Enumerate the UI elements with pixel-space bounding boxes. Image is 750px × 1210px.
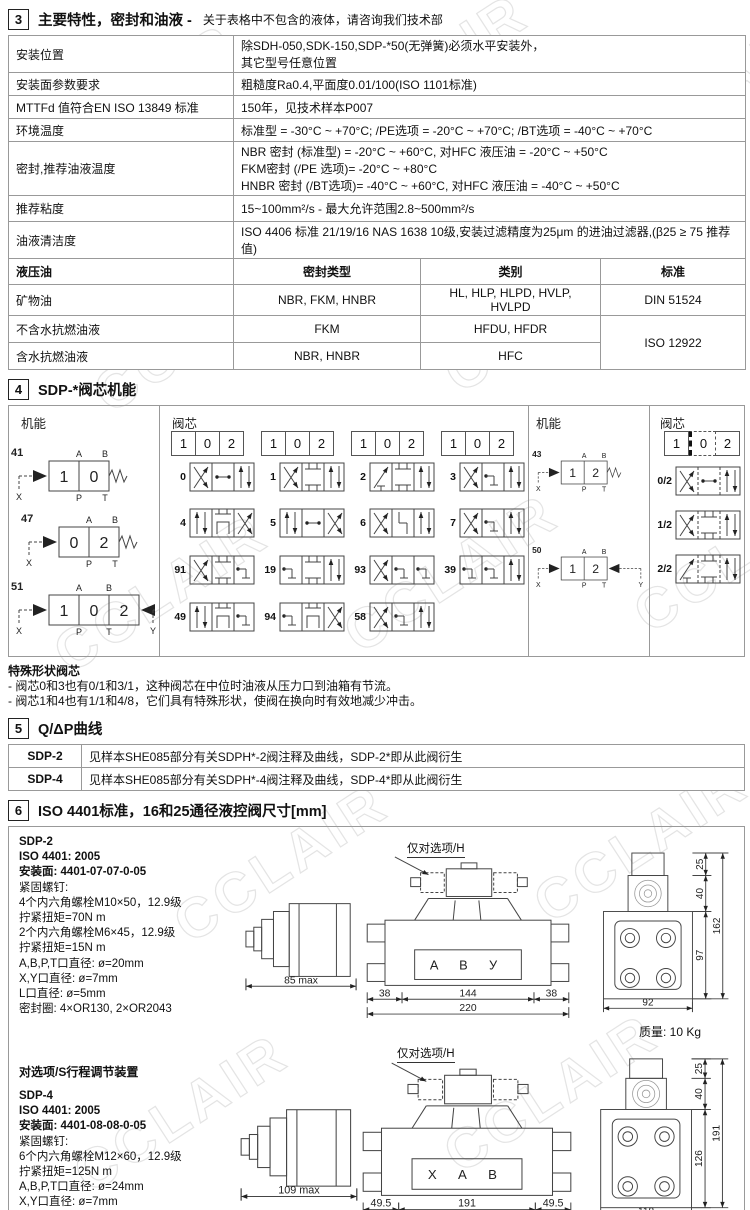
svg-text:51: 51 — [11, 581, 23, 593]
row-label: 推荐粘度 — [9, 196, 234, 222]
table-row: 安装面参数要求 粗糙度Ra0.4,平面度0.01/100(ISO 1101标准) — [9, 73, 746, 96]
special-spool-notes: 特殊形状阀芯 - 阀芯0和3也有0/1和3/1，这种阀芯在中位时油液从压力口到油… — [8, 664, 750, 709]
divider — [528, 406, 529, 656]
svg-text:49.5: 49.5 — [543, 1198, 564, 1210]
column-header: 类别 — [421, 259, 601, 285]
function-diagram-43: 4312ABPTX — [530, 448, 646, 502]
section3-number: 3 — [8, 9, 29, 30]
spool-symbol-4: 4 — [167, 508, 255, 538]
svg-text:144: 144 — [459, 988, 477, 999]
spec-line: X,Y口直径: ø=7mm — [19, 1195, 259, 1210]
svg-text:38: 38 — [546, 988, 558, 999]
table-row: 环境温度 标准型 = -30°C ~ +70°C; /PE选项 = -20°C … — [9, 119, 746, 142]
svg-text:P: P — [76, 493, 82, 503]
section6-number: 6 — [8, 800, 29, 821]
spool-id: 58 — [347, 611, 366, 623]
section3-subtitle: 关于表格中不包含的液体，请咨询我们技术部 — [203, 11, 443, 28]
spool-position-cell: 1 — [351, 431, 376, 456]
qdp-table: SDP-2 见样本SHE085部分有关SDPH*-2阀注释及曲线，SDP-2*即… — [8, 744, 745, 791]
spec-line: 6个内六角螺栓M12×60，12.9级 — [19, 1150, 259, 1165]
row-label: 环境温度 — [9, 119, 234, 142]
iso-standard: ISO 4401: 2005 — [19, 1104, 259, 1119]
svg-text:Y: Y — [150, 626, 156, 636]
spec-line: 拧紧扭矩=15N m — [19, 941, 259, 956]
fluid-seal: FKM — [234, 316, 421, 343]
svg-text:25: 25 — [695, 858, 706, 870]
spool-function-panel: 机能 阀芯 机能 阀芯 102 102 102 102 102 4110ABPT… — [8, 405, 745, 657]
model-name: SDP-2 — [19, 835, 259, 850]
svg-text:25: 25 — [694, 1063, 705, 1075]
svg-text:A: A — [582, 453, 587, 460]
svg-text:1: 1 — [60, 469, 69, 486]
spool-symbol-94: 94 — [257, 602, 345, 632]
section5-header: 5 Q/ΔP曲线 — [8, 718, 750, 739]
column-header-function: 机能 — [536, 413, 561, 432]
svg-text:P: P — [582, 583, 587, 590]
spool-id: 93 — [347, 564, 366, 576]
svg-text:T: T — [102, 493, 108, 503]
svg-text:109 max: 109 max — [278, 1184, 320, 1196]
spool-symbol-0: 0 — [167, 462, 255, 492]
spec-line: 紧固螺钉: — [19, 1135, 259, 1150]
spool-position-cell: 0 — [286, 431, 310, 456]
function-diagram-51: 51102ABPTXY — [9, 578, 159, 647]
row-value: 150年，见技术样本P007 — [234, 96, 746, 119]
table-row: 油液清洁度 ISO 4406 标准 21/19/16 NAS 1638 10级,… — [9, 222, 746, 259]
svg-text:B: B — [112, 515, 118, 525]
mounting-face: 安装面: 4401-08-08-0-05 — [19, 1119, 259, 1134]
section4-header: 4 SDP-*阀芯机能 — [8, 379, 750, 400]
spool-symbol-49: 49 — [167, 602, 255, 632]
fluid-standard: DIN 51524 — [601, 285, 746, 316]
svg-text:2: 2 — [100, 535, 109, 552]
svg-text:X: X — [26, 558, 32, 568]
svg-text:B: B — [602, 453, 607, 460]
svg-text:1: 1 — [569, 562, 576, 576]
spool-position-cell: 2 — [310, 431, 334, 456]
fluid-row: 不含水抗燃油液 FKM HFDU, HFDR ISO 12922 — [9, 316, 746, 343]
svg-text:38: 38 — [379, 988, 391, 999]
spool-id: 39 — [437, 564, 456, 576]
spool-symbol-2: 2 — [347, 462, 435, 492]
spool-symbol-6: 6 — [347, 508, 435, 538]
table-row: MTTFd 值符合EN ISO 13849 标准 150年，见技术样本P007 — [9, 96, 746, 119]
spool-position-box: 102 — [441, 431, 514, 456]
model-label: SDP-2 — [9, 745, 82, 768]
svg-text:92: 92 — [642, 997, 654, 1008]
row-label: 安装位置 — [9, 36, 234, 73]
spool-symbol-5: 5 — [257, 508, 345, 538]
fluid-name: 含水抗燃油液 — [9, 343, 234, 370]
svg-text:43: 43 — [532, 449, 542, 459]
section3-header: 3 主要特性，密封和油液 - 关于表格中不包含的液体，请咨询我们技术部 — [8, 9, 750, 30]
table-row: SDP-4 见样本SHE085部分有关SDPH*-4阀注释及曲线，SDP-4*即… — [9, 768, 745, 791]
spec-line: A,B,P,T口直径: ø=24mm — [19, 1180, 259, 1195]
svg-text:P: P — [582, 487, 587, 494]
section6-header: 6 ISO 4401标准，16和25通径液控阀尺寸[mm] — [8, 800, 750, 821]
row-label: 油液清洁度 — [9, 222, 234, 259]
spool-position-cell: 2 — [400, 431, 424, 456]
spec-line: 2个内六角螺栓M6×45，12.9级 — [19, 926, 259, 941]
svg-text:118: 118 — [638, 1206, 655, 1210]
spec-line: 紧固螺钉: — [19, 881, 259, 896]
row-label: 密封,推荐油液温度 — [9, 142, 234, 196]
spool-id: 19 — [257, 564, 276, 576]
spool-id: 0 — [167, 471, 186, 483]
sdp2-weight: 质量: 10 Kg — [639, 1023, 701, 1040]
spool-position-cell: 2 — [716, 431, 740, 456]
spool-id: 0/2 — [653, 475, 672, 487]
svg-text:2: 2 — [592, 466, 599, 480]
spool-id: 94 — [257, 611, 276, 623]
svg-text:47: 47 — [21, 513, 33, 525]
spool-id: 7 — [437, 517, 456, 529]
svg-text:0: 0 — [70, 535, 79, 552]
svg-text:X: X — [536, 486, 541, 493]
spec-line: 4个内六角螺栓M10×50，12.9级 — [19, 896, 259, 911]
svg-text:B: B — [102, 449, 108, 459]
fluid-class: HL, HLP, HLPD, HVLP, HVLPD — [421, 285, 601, 316]
svg-text:X: X — [16, 492, 22, 502]
svg-text:X A B: X A B — [428, 1167, 506, 1182]
spool-position-box: 102 — [664, 431, 740, 456]
spool-id: 6 — [347, 517, 366, 529]
spool-symbol-1/2: 1/2 — [653, 510, 741, 540]
datasheet-page: CCLAIR CCLAIR CCLAIR CCLAIR CCLAIR CCLAI… — [0, 0, 750, 1210]
model-desc: 见样本SHE085部分有关SDPH*-2阀注释及曲线，SDP-2*即从此阀衍生 — [82, 745, 745, 768]
svg-text:T: T — [602, 487, 607, 494]
svg-text:B: B — [106, 583, 112, 593]
fluid-class: HFC — [421, 343, 601, 370]
svg-text:A: A — [582, 549, 587, 556]
column-header: 标准 — [601, 259, 746, 285]
svg-text:A B У: A B У — [430, 958, 506, 973]
row-value: ISO 4406 标准 21/19/16 NAS 1638 10级,安装过滤精度… — [234, 222, 746, 259]
fluid-header-row: 液压油 密封类型 类别 标准 — [9, 259, 746, 285]
spool-id: 2/2 — [653, 563, 672, 575]
svg-text:Y: Y — [639, 582, 644, 589]
notes-title: 特殊形状阀芯 — [8, 664, 750, 679]
spool-id: 1/2 — [653, 519, 672, 531]
column-header: 液压油 — [9, 259, 234, 285]
spec-line: X,Y口直径: ø=7mm — [19, 972, 259, 987]
svg-text:97: 97 — [695, 949, 706, 961]
spool-id: 49 — [167, 611, 186, 623]
svg-text:T: T — [602, 583, 607, 590]
spool-position-cell: 0 — [466, 431, 490, 456]
spool-position-cell: 0 — [376, 431, 400, 456]
spool-symbol-39: 39 — [437, 555, 525, 585]
spec-line: A,B,P,T口直径: ø=20mm — [19, 957, 259, 972]
svg-text:1: 1 — [60, 603, 69, 620]
svg-text:85 max: 85 max — [284, 975, 319, 986]
svg-text:0: 0 — [90, 469, 99, 486]
sdp4-end-view: 2540126191118 — [591, 1055, 736, 1210]
svg-text:50: 50 — [532, 545, 542, 555]
fluid-seal: NBR, HNBR — [234, 343, 421, 370]
row-value: NBR 密封 (标准型) = -20°C ~ +60°C, 对HFC 液压油 =… — [234, 142, 746, 196]
row-value: 15~100mm²/s - 最大允许范围2.8~500mm²/s — [234, 196, 746, 222]
fluid-name: 矿物油 — [9, 285, 234, 316]
table-row: SDP-2 见样本SHE085部分有关SDPH*-2阀注释及曲线，SDP-2*即… — [9, 745, 745, 768]
section6-title: ISO 4401标准，16和25通径液控阀尺寸[mm] — [38, 800, 326, 821]
section4-title: SDP-*阀芯机能 — [38, 379, 136, 400]
dimensions-panel: SDP-2 ISO 4401: 2005 安装面: 4401-07-07-0-0… — [8, 826, 745, 1210]
function-diagram-50: 5012ABPTXY — [530, 544, 646, 598]
svg-text:40: 40 — [694, 1088, 705, 1100]
section5-title: Q/ΔP曲线 — [38, 718, 102, 739]
spool-position-cell: 1 — [664, 431, 689, 456]
spool-symbol-0/2: 0/2 — [653, 466, 741, 496]
svg-text:49.5: 49.5 — [371, 1198, 392, 1210]
spool-position-box: 102 — [351, 431, 424, 456]
spool-symbol-2/2: 2/2 — [653, 554, 741, 584]
table-row: 密封,推荐油液温度 NBR 密封 (标准型) = -20°C ~ +60°C, … — [9, 142, 746, 196]
svg-text:A: A — [76, 583, 82, 593]
row-value: 粗糙度Ra0.4,平面度0.01/100(ISO 1101标准) — [234, 73, 746, 96]
svg-text:T: T — [106, 627, 112, 637]
spool-symbol-7: 7 — [437, 508, 525, 538]
spool-symbol-19: 19 — [257, 555, 345, 585]
note-line: - 阀芯0和3也有0/1和3/1，这种阀芯在中位时油液从压力口到油箱有节流。 — [8, 679, 750, 694]
svg-text:220: 220 — [459, 1003, 477, 1014]
sdp4-specs: SDP-4 ISO 4401: 2005 安装面: 4401-08-08-0-0… — [19, 1089, 259, 1210]
svg-text:A: A — [86, 515, 92, 525]
svg-text:162: 162 — [712, 917, 723, 934]
spool-symbol-3: 3 — [437, 462, 525, 492]
sdp2-end-view: 25409716292 — [594, 849, 736, 1018]
fluid-row: 矿物油 NBR, FKM, HNBR HL, HLP, HLPD, HVLP, … — [9, 285, 746, 316]
section3-title: 主要特性，密封和油液 - — [38, 9, 192, 30]
spool-position-cell: 0 — [196, 431, 220, 456]
note-line: - 阀芯1和4也有1/1和4/8，它们具有特殊形状，使阀在换向时有效地减少冲击。 — [8, 694, 750, 709]
svg-text:X: X — [16, 626, 22, 636]
model-name: SDP-4 — [19, 1089, 259, 1104]
sdp2-specs: SDP-2 ISO 4401: 2005 安装面: 4401-07-07-0-0… — [19, 835, 259, 1017]
function-diagram-47: 4702ABPTX — [19, 510, 169, 579]
sdp4-front-view: X A B49.519149.5290 — [355, 1059, 579, 1210]
sdp2-front-view: A B У3814438220 — [359, 853, 577, 1019]
svg-text:P: P — [86, 559, 92, 569]
row-label: 安装面参数要求 — [9, 73, 234, 96]
iso-standard: ISO 4401: 2005 — [19, 850, 259, 865]
fluid-name: 不含水抗燃油液 — [9, 316, 234, 343]
spool-position-cell: 1 — [441, 431, 466, 456]
fluid-seal: NBR, FKM, HNBR — [234, 285, 421, 316]
spec-line: 拧紧扭矩=70N m — [19, 911, 259, 926]
svg-text:191: 191 — [458, 1198, 476, 1210]
function-diagram-41: 4110ABPTX — [9, 444, 159, 513]
spool-id: 3 — [437, 471, 456, 483]
spool-id: 91 — [167, 564, 186, 576]
svg-text:126: 126 — [694, 1150, 705, 1167]
svg-text:41: 41 — [11, 447, 23, 459]
column-header: 密封类型 — [234, 259, 421, 285]
fluid-standard: ISO 12922 — [601, 316, 746, 370]
section4-number: 4 — [8, 379, 29, 400]
svg-text:40: 40 — [695, 888, 706, 900]
spool-id: 4 — [167, 517, 186, 529]
spool-id: 5 — [257, 517, 276, 529]
svg-text:2: 2 — [592, 562, 599, 576]
svg-text:1: 1 — [569, 466, 576, 480]
column-header-spool: 阀芯 — [172, 413, 197, 432]
spec-line: L口直径: ø=5mm — [19, 987, 259, 1002]
svg-text:A: A — [76, 449, 82, 459]
row-value: 标准型 = -30°C ~ +70°C; /PE选项 = -20°C ~ +70… — [234, 119, 746, 142]
svg-text:P: P — [76, 627, 82, 637]
row-label: MTTFd 值符合EN ISO 13849 标准 — [9, 96, 234, 119]
spool-id: 2 — [347, 471, 366, 483]
sdp2-side-view: 85 max — [242, 883, 362, 1001]
spool-position-box: 102 — [261, 431, 334, 456]
spool-position-cell: 1 — [261, 431, 286, 456]
row-value: 除SDH-050,SDK-150,SDP-*50(无弹簧)必须水平安装外， 其它… — [234, 36, 746, 73]
svg-text:0: 0 — [90, 603, 99, 620]
table-row: 推荐粘度 15~100mm²/s - 最大允许范围2.8~500mm²/s — [9, 196, 746, 222]
svg-text:191: 191 — [712, 1124, 723, 1141]
characteristics-table: 安装位置 除SDH-050,SDK-150,SDP-*50(无弹簧)必须水平安装… — [8, 35, 746, 370]
table-row: 安装位置 除SDH-050,SDK-150,SDP-*50(无弹簧)必须水平安装… — [9, 36, 746, 73]
fluid-class: HFDU, HFDR — [421, 316, 601, 343]
spool-position-cell: 0 — [689, 431, 716, 456]
spool-position-box: 102 — [171, 431, 244, 456]
spool-symbol-1: 1 — [257, 462, 345, 492]
column-header-function: 机能 — [21, 413, 46, 432]
spool-id: 1 — [257, 471, 276, 483]
section5-number: 5 — [8, 718, 29, 739]
divider — [649, 406, 650, 656]
spool-position-cell: 2 — [490, 431, 514, 456]
mounting-face: 安装面: 4401-07-07-0-05 — [19, 865, 259, 880]
model-label: SDP-4 — [9, 768, 82, 791]
spool-symbol-91: 91 — [167, 555, 255, 585]
svg-text:B: B — [602, 549, 607, 556]
spool-position-cell: 2 — [220, 431, 244, 456]
svg-text:2: 2 — [120, 603, 129, 620]
column-header-spool: 阀芯 — [660, 413, 685, 432]
sdp4-side-view: 109 max — [237, 1089, 363, 1210]
svg-text:X: X — [536, 582, 541, 589]
spec-line: 拧紧扭矩=125N m — [19, 1165, 259, 1180]
option-s-heading: 对选项/S行程调节装置 — [19, 1063, 138, 1080]
model-desc: 见样本SHE085部分有关SDPH*-4阀注释及曲线，SDP-4*即从此阀衍生 — [82, 768, 745, 791]
spool-symbol-58: 58 — [347, 602, 435, 632]
spool-symbol-93: 93 — [347, 555, 435, 585]
spec-line: 密封圈: 4×OR130, 2×OR2043 — [19, 1002, 259, 1017]
spool-position-cell: 1 — [171, 431, 196, 456]
svg-text:T: T — [112, 559, 118, 569]
